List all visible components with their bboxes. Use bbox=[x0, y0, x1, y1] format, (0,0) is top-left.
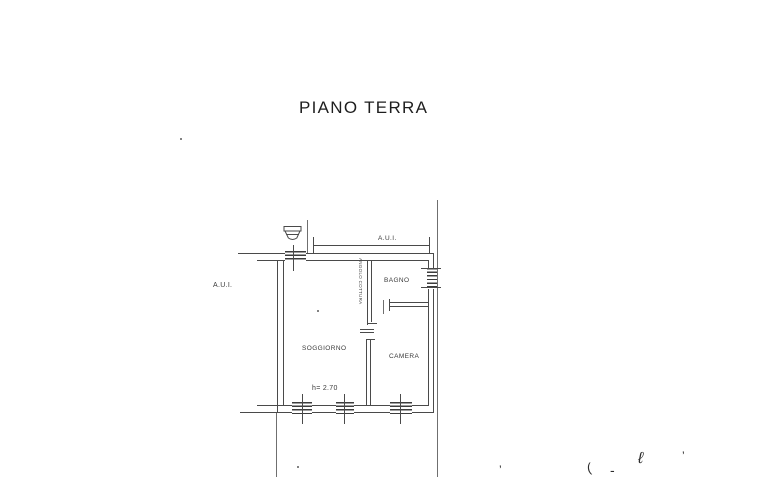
entrance-door-symbol bbox=[285, 251, 306, 262]
wall-right-outer bbox=[433, 288, 434, 413]
wall-top-inner-left bbox=[257, 260, 285, 261]
wall-bagno-bottom bbox=[390, 302, 428, 303]
scan-speck bbox=[297, 466, 299, 468]
wall-bottom-inner bbox=[312, 405, 336, 406]
window-tick bbox=[344, 394, 345, 424]
scan-speck bbox=[317, 310, 319, 312]
wall-bottom-inner bbox=[354, 405, 390, 406]
scan-speck bbox=[180, 138, 182, 140]
opening-threshold bbox=[360, 332, 374, 333]
wall-right-inner bbox=[428, 288, 429, 405]
opening-threshold bbox=[360, 329, 374, 330]
floor-plan-page: PIANO TERRA bbox=[0, 0, 771, 477]
wall-stub-top bbox=[307, 220, 308, 254]
window-tick bbox=[421, 287, 441, 288]
scan-mark: ( bbox=[586, 461, 592, 474]
wall-bottom-outer bbox=[240, 412, 292, 413]
room-label-soggiorno: SOGGIORNO bbox=[302, 346, 346, 353]
aui-boundary-tick-right bbox=[429, 237, 430, 253]
wall-right-outer bbox=[433, 253, 434, 268]
wall-left-outer bbox=[277, 260, 278, 413]
scan-mark: ’ bbox=[682, 450, 685, 462]
aui-boundary-line bbox=[313, 245, 430, 246]
wall-bagno-left-foot bbox=[367, 323, 377, 324]
wall-bottom-inner bbox=[412, 405, 429, 406]
window-symbol-bagno bbox=[427, 268, 437, 289]
wall-bottom-outer bbox=[412, 412, 434, 413]
label-aui-top: A.U.I. bbox=[378, 236, 397, 243]
scan-mark: ℓ bbox=[638, 451, 643, 467]
wall-bagno-left bbox=[371, 260, 372, 322]
page-title: PIANO TERRA bbox=[299, 98, 428, 118]
window-tick bbox=[421, 268, 441, 269]
wall-bottom-inner bbox=[257, 405, 292, 406]
height-note: h= 2.70 bbox=[312, 385, 338, 392]
door-leaf-bagno bbox=[383, 300, 384, 314]
entrance-door-tick bbox=[293, 245, 294, 271]
scan-mark: - bbox=[610, 463, 615, 477]
wall-partition bbox=[370, 340, 371, 405]
window-symbol bbox=[336, 402, 354, 414]
scan-mark: ’ bbox=[499, 464, 502, 476]
wall-bagno-left bbox=[367, 260, 368, 325]
room-label-bagno: BAGNO bbox=[384, 278, 409, 285]
room-label-camera: CAMERA bbox=[389, 354, 419, 361]
wall-top-outer-left bbox=[238, 253, 285, 254]
room-label-angolo-cottura: ANGOLO COTTURA bbox=[358, 258, 363, 304]
wall-top-outer-right bbox=[306, 253, 433, 254]
window-tick bbox=[302, 394, 303, 424]
wall-partition bbox=[366, 340, 367, 405]
boundary-line-right bbox=[437, 200, 438, 477]
wall-bottom-outer bbox=[354, 412, 390, 413]
aui-boundary-tick-left bbox=[313, 237, 314, 254]
label-aui-left: A.U.I. bbox=[213, 282, 232, 289]
boundary-line-bottom-left bbox=[276, 413, 277, 477]
sink-icon bbox=[283, 225, 303, 243]
window-symbol bbox=[390, 402, 412, 414]
wall-bottom-outer bbox=[312, 412, 336, 413]
wall-bagno-bottom-cap bbox=[389, 299, 390, 311]
wall-bagno-bottom bbox=[390, 306, 428, 307]
wall-left-inner bbox=[283, 260, 284, 405]
window-tick bbox=[400, 394, 401, 424]
